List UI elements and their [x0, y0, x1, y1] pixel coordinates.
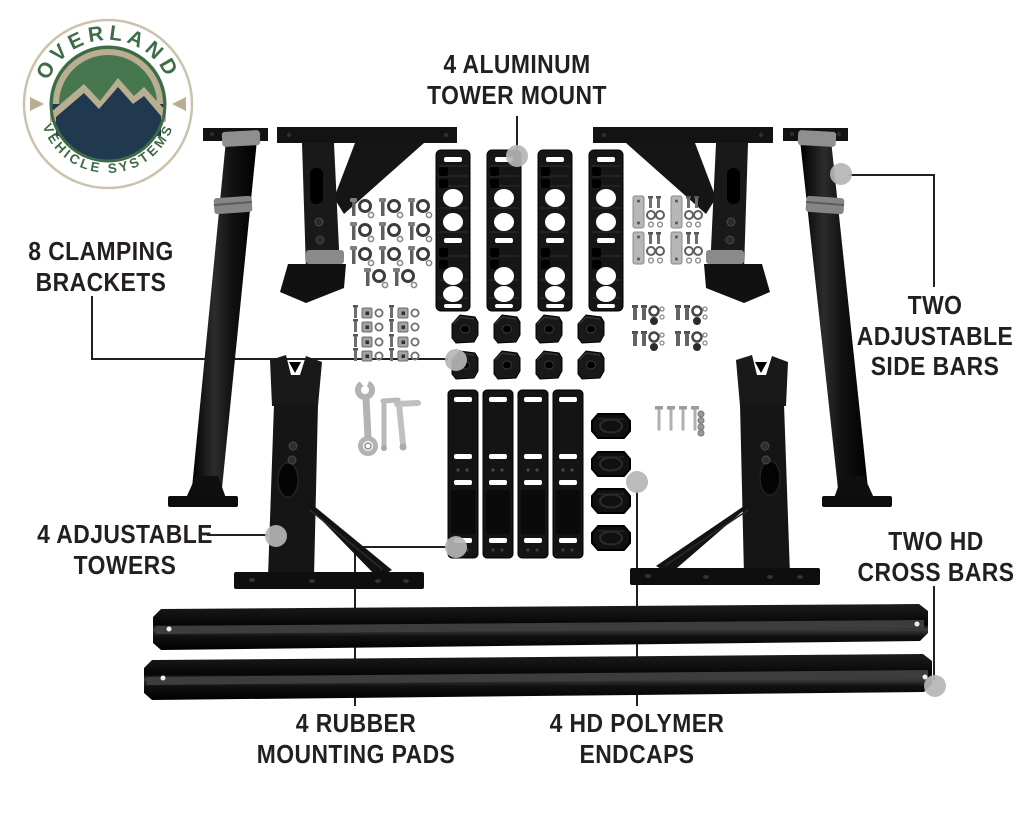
callout-label-clamping-brackets: 8 CLAMPINGBRACKETS: [0, 236, 242, 297]
parts-diagram: 4 ALUMINUMTOWER MOUNT8 CLAMPINGBRACKETST…: [0, 0, 1024, 819]
callout-label-tower-mount: 4 ALUMINUMTOWER MOUNT: [376, 49, 658, 110]
callout-label-cross-bars: TWO HDCROSS BARS: [795, 526, 1024, 587]
callout-label-adjustable-towers: 4 ADJUSTABLETOWERS: [0, 519, 266, 580]
callout-label-side-bars: TWOADJUSTABLESIDE BARS: [794, 290, 1024, 382]
brand-logo: OVERLAND VEHICLE SYSTEMS: [20, 16, 196, 192]
callout-label-mounting-pads: 4 RUBBERMOUNTING PADS: [215, 708, 497, 769]
callout-label-endcaps: 4 HD POLYMERENDCAPS: [496, 708, 778, 769]
